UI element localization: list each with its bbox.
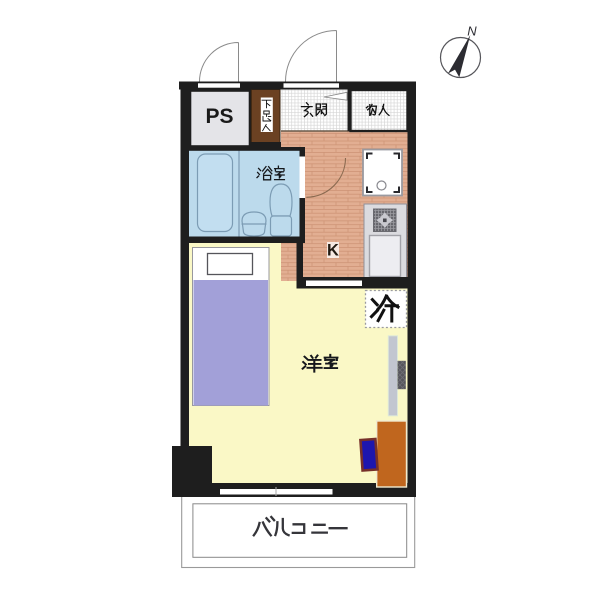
svg-text:N: N bbox=[467, 24, 477, 39]
svg-text:K: K bbox=[327, 242, 339, 260]
svg-text:PS: PS bbox=[205, 105, 233, 128]
